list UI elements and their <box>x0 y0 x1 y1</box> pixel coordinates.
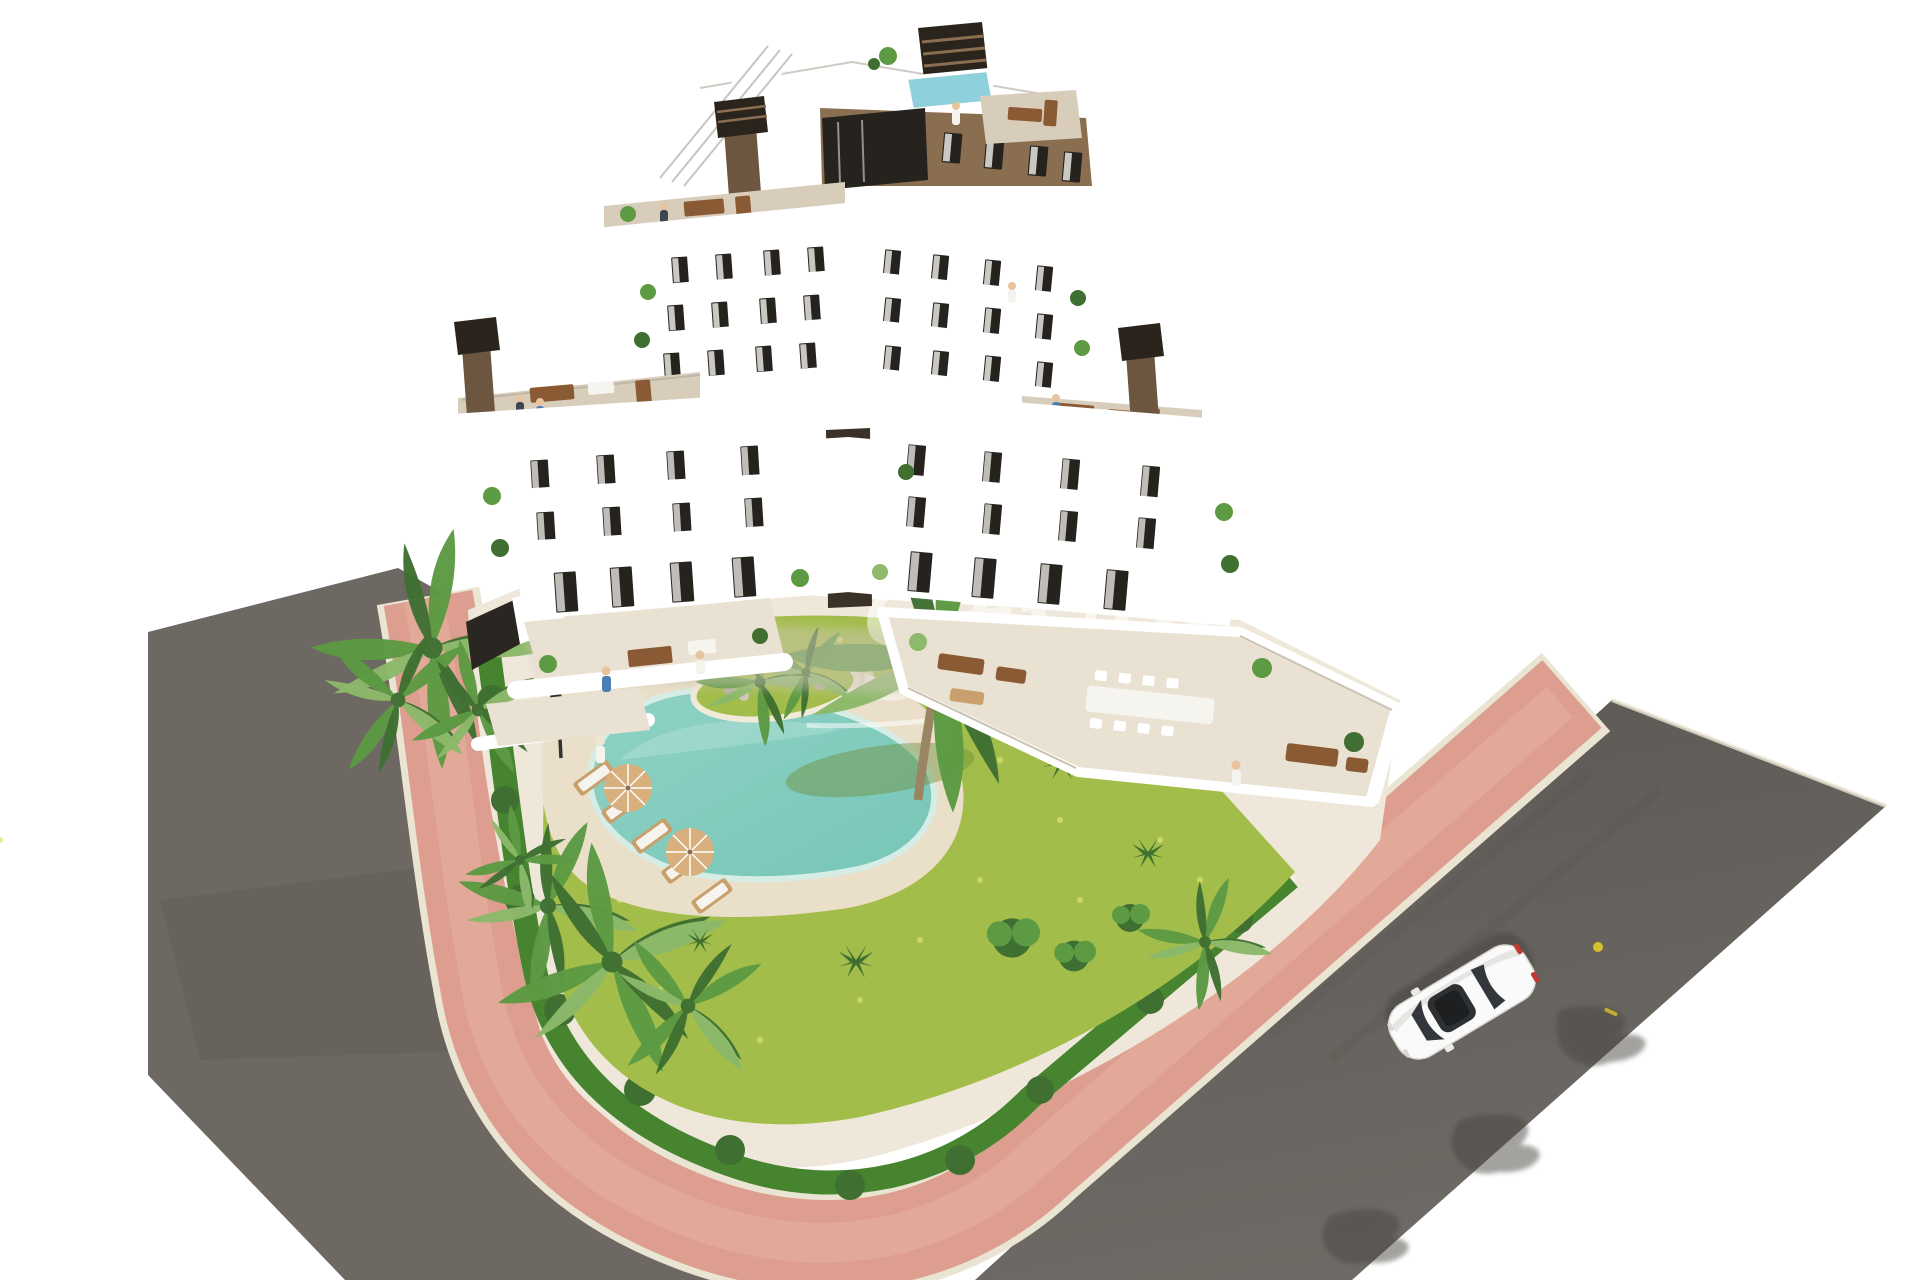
rooftop-plunge-pool <box>906 70 994 110</box>
person <box>660 202 668 224</box>
apartment-building <box>452 14 1398 802</box>
person <box>1008 282 1016 303</box>
roof-plant <box>879 47 897 65</box>
property-render-image: Style PREMIUM <box>0 0 1920 1280</box>
person <box>1232 761 1242 787</box>
person <box>952 102 960 125</box>
property-render-page: Style PREMIUM <box>0 0 1920 1280</box>
person <box>595 736 605 763</box>
road-marker <box>1593 942 1603 952</box>
person <box>602 667 612 693</box>
person <box>696 651 706 675</box>
lower-floors <box>466 428 1242 613</box>
